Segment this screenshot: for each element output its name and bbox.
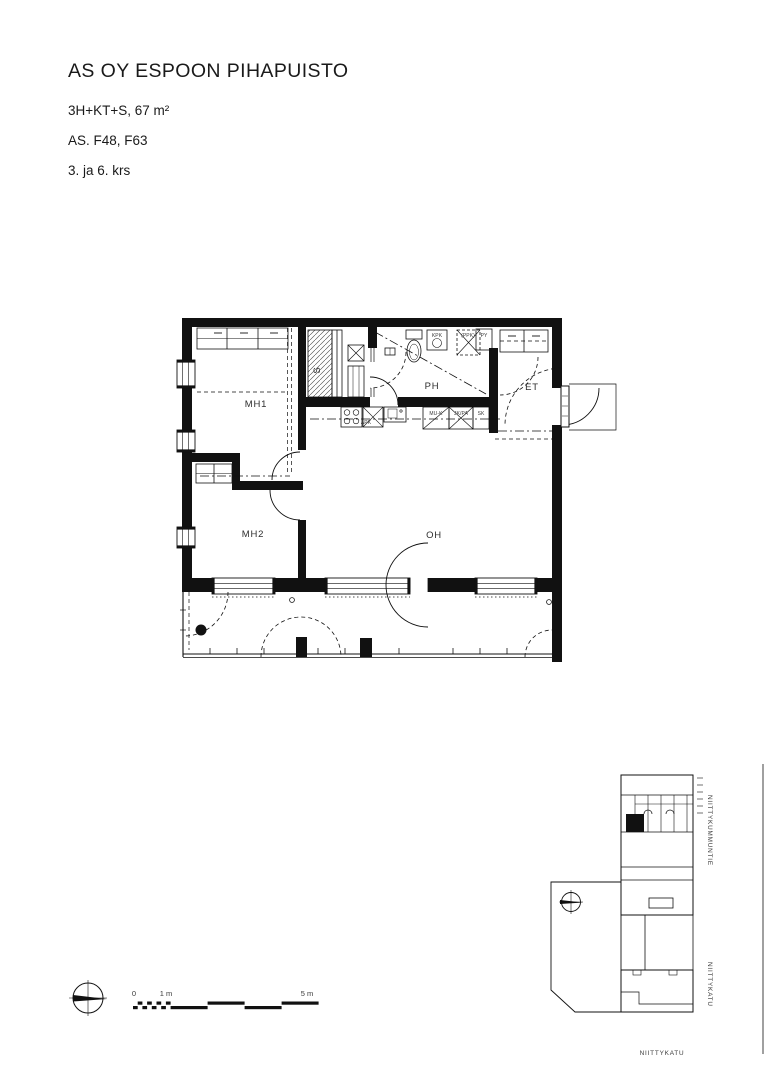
apartment-numbers: AS. F48, F63 [68,133,348,148]
entry-door [561,384,616,430]
balcony-column [196,625,207,636]
apartment-type: 3H+KT+S, 67 m² [68,103,348,118]
room-label-mh2: MH2 [242,529,264,540]
page-title: AS OY ESPOON PIHAPUISTO [68,60,348,83]
title-block: AS OY ESPOON PIHAPUISTO 3H+KT+S, 67 m² A… [68,60,348,193]
north-arrow-icon [559,890,583,914]
scale-bar [133,1002,319,1010]
fixture-label-jk-pa: JK/PA [454,411,469,417]
door-swings-dashed [184,352,562,657]
room-label-ph: PH [425,381,440,392]
room-label-sauna: S [312,366,323,373]
walls [182,318,562,662]
scale-label-0: 0 [132,989,136,998]
windows [177,360,537,597]
scale-label-5m: 5 m [301,989,314,998]
compass-icon [69,980,107,1016]
street-label-niittykatu-bottom: NIITTYKATU [640,1050,685,1057]
fixture-label-sk: SK [478,411,485,417]
room-label-et: ET [525,382,539,393]
street-label-niittykummuntie: NIITTYKUMMUNTIE [706,795,713,866]
room-label-mh1: MH1 [245,399,267,410]
scale-label-1m: 1 m [160,989,173,998]
fixture-label-py: PY [481,333,488,339]
scale-bar-drawing: 0 1 m 5 m [60,970,330,1030]
floors-text: 3. ja 6. krs [68,163,348,178]
site-plan-drawing: NIITTYKUMMUNTIE NIITTYKATU NIITTYKATU [545,762,768,1062]
fixture-label-apk: APK [361,420,372,426]
fixture-label-ppk: (PPK) [461,333,475,339]
floor-plan-drawing: MH1 MH2 OH PH ET S KPK (PPK) PY APK MU-K… [170,300,640,680]
drawing-sheet: AS OY ESPOON PIHAPUISTO 3H+KT+S, 67 m² A… [0,0,768,1086]
street-label-niittykatu-right: NIITTYKATU [706,962,713,1007]
fixture-label-mu-k: MU-K [429,411,443,417]
room-label-oh: OH [426,530,442,541]
highlighted-apartment-marker [626,814,644,832]
fixture-label-kpk: KPK [432,333,443,339]
